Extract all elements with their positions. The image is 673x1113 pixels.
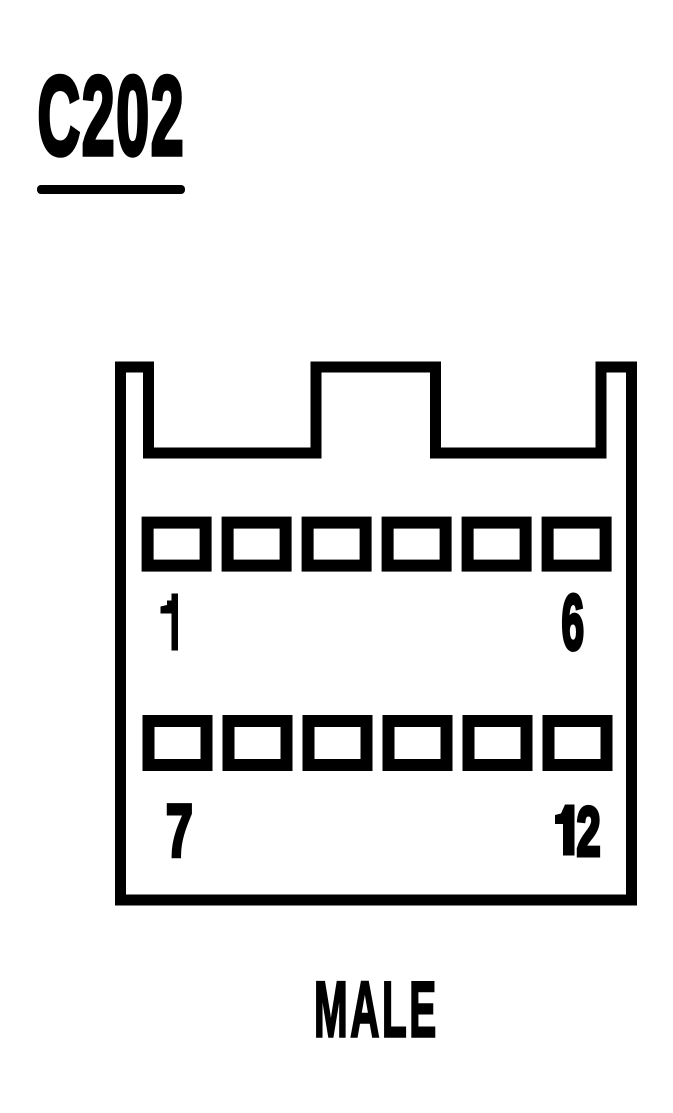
svg-text:C202: C202 xyxy=(38,53,186,178)
svg-text:7: 7 xyxy=(166,791,193,873)
svg-text:MALE: MALE xyxy=(314,966,439,1054)
svg-text:6: 6 xyxy=(562,580,585,667)
svg-text:2: 2 xyxy=(577,793,601,871)
